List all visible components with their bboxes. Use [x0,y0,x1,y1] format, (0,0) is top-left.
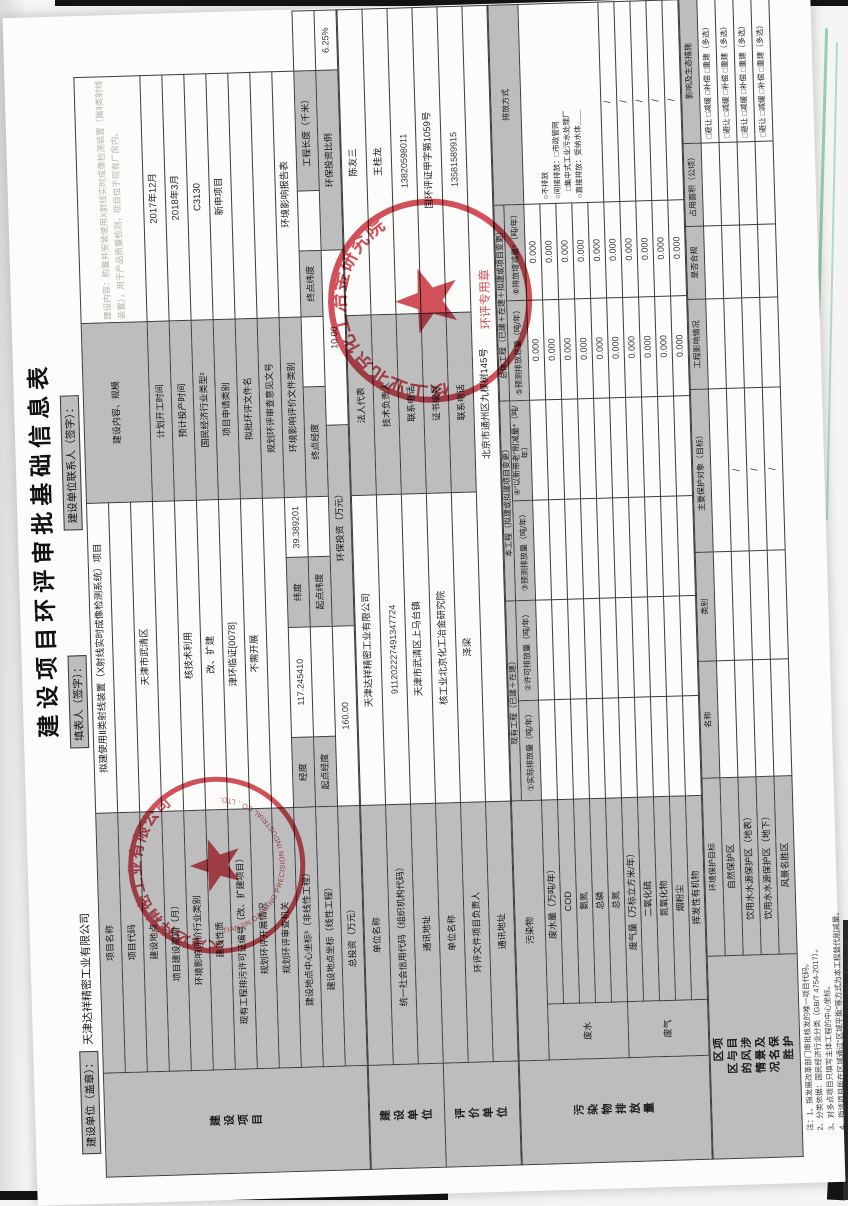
field-value [703,225,723,298]
field-label: 纬度 [286,557,310,628]
field-value [755,141,775,224]
builder-stamp-value: 天津达祥精密工业有限公司 [76,913,96,1045]
field-label: 终点经度 [303,386,328,497]
builder-stamp-label: 建设单位（盖章）： [79,1051,101,1155]
section-eia-unit: 评价单位 [443,1061,521,1167]
svg-text:TIANJIN DAXIANG PRECISION INDU: TIANJIN DAXIANG PRECISION INDUSTRIAL CO.… [218,793,289,935]
unit-contact-label: 建设单位联系人（签字）： [59,395,82,530]
env-investment-ratio-value: 6.25% [314,10,338,71]
field-value [767,550,788,659]
field-label: 风景名胜区 [773,776,796,954]
field-value [759,297,780,388]
field-value [770,659,791,777]
field-value [310,626,335,737]
field-value [757,224,777,297]
field-label: 起点纬度 [308,556,332,627]
construction-content-value: 建设内容：购置并安装使用X射线实时成像检测装置（属Ⅱ类射线装置），用于产品质量检… [73,75,149,323]
eia-unit-seal-stamp: 核工业北京化工冶金研究院 环评专用章 [320,191,540,411]
field-value: / [762,387,785,550]
company-seal-stamp: 天津达祥精密工业有限公司 TIANJIN DAXIANG PRECISION I… [121,770,312,961]
field-value [297,190,321,251]
field-label: 建设内容、规模 [81,322,152,504]
wastewater-discharge-mode: ○不排放 ○间接排放：□市政管网 □集中式工业污水处理厂 ○直接排放：受纳水体＿… [517,2,603,204]
field-label: 是否合规 [685,226,705,299]
svg-text:环评专用章: 环评专用章 [476,269,493,329]
section-construction-project: 建设项目 [103,1065,370,1177]
field-value [292,11,316,72]
project-info-table: 建设项目项目名称拟建使用Ⅱ类射线装置（X射线实时成像检测系统）项目建设内容、规模… [72,9,371,1177]
form-filler-label: 填表人（签字）： [67,655,89,748]
field-label: 废水 [547,1002,629,1060]
field-label: 起点经度 [314,736,338,807]
section-pollutant-discharge: 污染物排放量 [519,1055,712,1165]
field-value [721,225,741,298]
section-protected-areas: 项目涉及保护区与风景名胜区的情况 [707,953,803,1159]
pollutant-discharge-table: 污染物排放量污染物现有工程（已建＋在建）本工程（拟建或拟建项目变更）总体工程（已… [487,0,712,1165]
field-label: 终点纬度 [299,250,323,317]
form-sheet: 建设项目环评审批基础信息表 建设单位（盖章）： 天津达祥精密工业有限公司 填表人… [3,0,846,1206]
latitude-value: 39.389201 [284,497,308,558]
section-construction-unit: 建设单位 [368,1063,446,1169]
field-value: □避让 □减缓 □补偿 □重建（多选） [750,0,772,142]
field-value [739,224,759,297]
seal-star-icon [394,267,457,334]
field-value [301,316,325,387]
field-label: 废气 [627,999,709,1057]
field-value [306,496,330,557]
longitude-value: 117.245410 [288,627,313,738]
seal-star-icon [189,838,240,892]
